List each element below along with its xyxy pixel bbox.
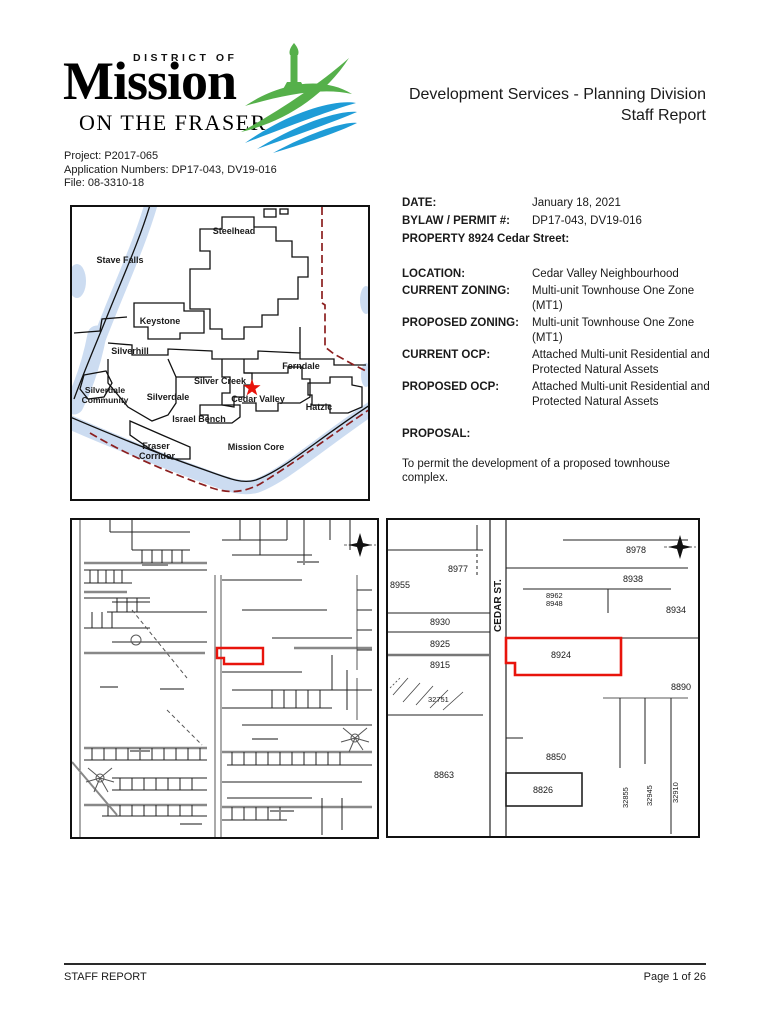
cul-de-sac-left <box>86 768 114 792</box>
church-tower-icon <box>282 43 306 91</box>
proposed-zoning-value: Multi-unit Townhouse One Zone (MT1) <box>532 316 712 345</box>
parcel-detail-map: CEDAR ST. <box>386 518 700 838</box>
permit-label: BYLAW / PERMIT #: <box>402 214 532 229</box>
project-info: Project: P2017-065 Application Numbers: … <box>64 150 277 191</box>
date-row: DATE: January 18, 2021 <box>402 196 712 211</box>
lot-8938: 8938 <box>623 574 643 584</box>
label-israel-bench: Israel Bench <box>172 414 226 424</box>
subject-parcel-highlight <box>217 648 263 664</box>
label-silver-creek: Silver Creek <box>194 376 247 386</box>
label-mission-core: Mission Core <box>228 442 285 452</box>
logo-district-of: DISTRICT OF <box>133 52 237 64</box>
current-ocp-row: CURRENT OCP: Attached Multi-unit Residen… <box>402 348 712 377</box>
label-steelhead: Steelhead <box>213 226 256 236</box>
cedar-street-lines <box>490 520 506 836</box>
lot-8977: 8977 <box>448 564 468 574</box>
proposed-zoning-row: PROPOSED ZONING: Multi-unit Townhouse On… <box>402 316 712 345</box>
label-silverdale-community-2: Community <box>82 395 129 405</box>
date-value: January 18, 2021 <box>532 196 712 211</box>
application-numbers: Application Numbers: DP17-043, DV19-016 <box>64 164 277 178</box>
report-title-line2: Staff Report <box>346 105 706 126</box>
label-fraser-corridor-2: Corridor <box>139 451 175 461</box>
site-map-svg <box>72 520 377 837</box>
proposed-ocp-row: PROPOSED OCP: Attached Multi-unit Reside… <box>402 380 712 409</box>
spacer <box>402 247 712 267</box>
permit-row: BYLAW / PERMIT #: DP17-043, DV19-016 <box>402 214 712 229</box>
report-title: Development Services - Planning Division… <box>346 84 706 126</box>
site-context-map <box>70 518 379 839</box>
label-silverdale-community-1: Silverdale <box>85 385 125 395</box>
neighbourhood-overview-map: Steelhead Stave Falls Keystone Silverhil… <box>70 205 370 501</box>
project-number: Project: P2017-065 <box>64 150 277 164</box>
lot-32751: 32751 <box>428 695 449 704</box>
lot-32910: 32910 <box>671 782 680 803</box>
lot-8925: 8925 <box>430 639 450 649</box>
lot-32945: 32945 <box>645 785 654 806</box>
lot-8890: 8890 <box>671 682 691 692</box>
lot-8850: 8850 <box>546 752 566 762</box>
label-ferndale: Ferndale <box>282 361 320 371</box>
hatched-lots <box>390 678 463 710</box>
permit-value: DP17-043, DV19-016 <box>532 214 712 229</box>
report-title-line1: Development Services - Planning Division <box>346 84 706 105</box>
district-of-mission-logo: Mission DISTRICT OF ON THE FRASER <box>63 44 363 152</box>
cul-de-sac-right <box>341 728 369 752</box>
lot-8934: 8934 <box>666 605 686 615</box>
lot-8826: 8826 <box>533 785 553 795</box>
current-zoning-value: Multi-unit Townhouse One Zone (MT1) <box>532 284 712 313</box>
proposal-text: To permit the development of a proposed … <box>402 457 712 486</box>
proposed-ocp-label: PROPOSED OCP: <box>402 380 532 409</box>
lot-8863: 8863 <box>434 770 454 780</box>
label-stave-falls: Stave Falls <box>96 255 143 265</box>
current-zoning-row: CURRENT ZONING: Multi-unit Townhouse One… <box>402 284 712 313</box>
region-map-svg: Steelhead Stave Falls Keystone Silverhil… <box>72 207 368 499</box>
current-zoning-label: CURRENT ZONING: <box>402 284 532 313</box>
parcel-map-svg: CEDAR ST. <box>388 520 698 836</box>
location-value: Cedar Valley Neighbourhood <box>532 267 712 282</box>
location-label: LOCATION: <box>402 267 532 282</box>
footer-divider <box>64 963 706 965</box>
lot-8948: 8948 <box>546 599 563 608</box>
lot-8978: 8978 <box>626 545 646 555</box>
current-ocp-value: Attached Multi-unit Residential and Prot… <box>532 348 712 377</box>
current-ocp-label: CURRENT OCP: <box>402 348 532 377</box>
property-heading: PROPERTY 8924 Cedar Street: <box>402 232 712 247</box>
parcel-lines <box>84 520 372 835</box>
lot-number-labels: 8955 8977 8930 8925 8915 32751 8863 8978… <box>390 545 691 808</box>
proposed-zoning-label: PROPOSED ZONING: <box>402 316 532 345</box>
north-arrow-icon <box>664 535 696 559</box>
blue-waves-icon <box>245 102 357 153</box>
lot-8930: 8930 <box>430 617 450 627</box>
lot-8915: 8915 <box>430 660 450 670</box>
location-row: LOCATION: Cedar Valley Neighbourhood <box>402 267 712 282</box>
report-details: DATE: January 18, 2021 BYLAW / PERMIT #:… <box>402 196 712 486</box>
cedar-st-label: CEDAR ST. <box>493 579 504 632</box>
label-cedar-valley: Cedar Valley <box>231 394 285 404</box>
logo-swoosh-icon <box>239 42 359 154</box>
proposal-heading: PROPOSAL: <box>402 427 712 442</box>
label-hatzic: Hatzic <box>306 402 333 412</box>
label-keystone: Keystone <box>140 316 181 326</box>
lot-8955: 8955 <box>390 580 410 590</box>
north-arrow-icon <box>344 533 376 557</box>
lot-8924: 8924 <box>551 650 571 660</box>
footer-page-number: Page 1 of 26 <box>644 971 706 983</box>
label-silverdale: Silverdale <box>147 392 190 402</box>
lot-32855: 32855 <box>621 787 630 808</box>
street-name-smudges <box>100 561 319 825</box>
file-number: File: 08-3310-18 <box>64 177 277 191</box>
street-lines <box>80 520 357 837</box>
proposed-ocp-value: Attached Multi-unit Residential and Prot… <box>532 380 712 409</box>
date-label: DATE: <box>402 196 532 211</box>
footer-report-type: STAFF REPORT <box>64 971 147 983</box>
label-fraser-corridor-1: Fraser <box>142 441 170 451</box>
staff-report-page: Mission DISTRICT OF ON THE FRASER De <box>0 0 770 1024</box>
label-silverhill: Silverhill <box>111 346 149 356</box>
